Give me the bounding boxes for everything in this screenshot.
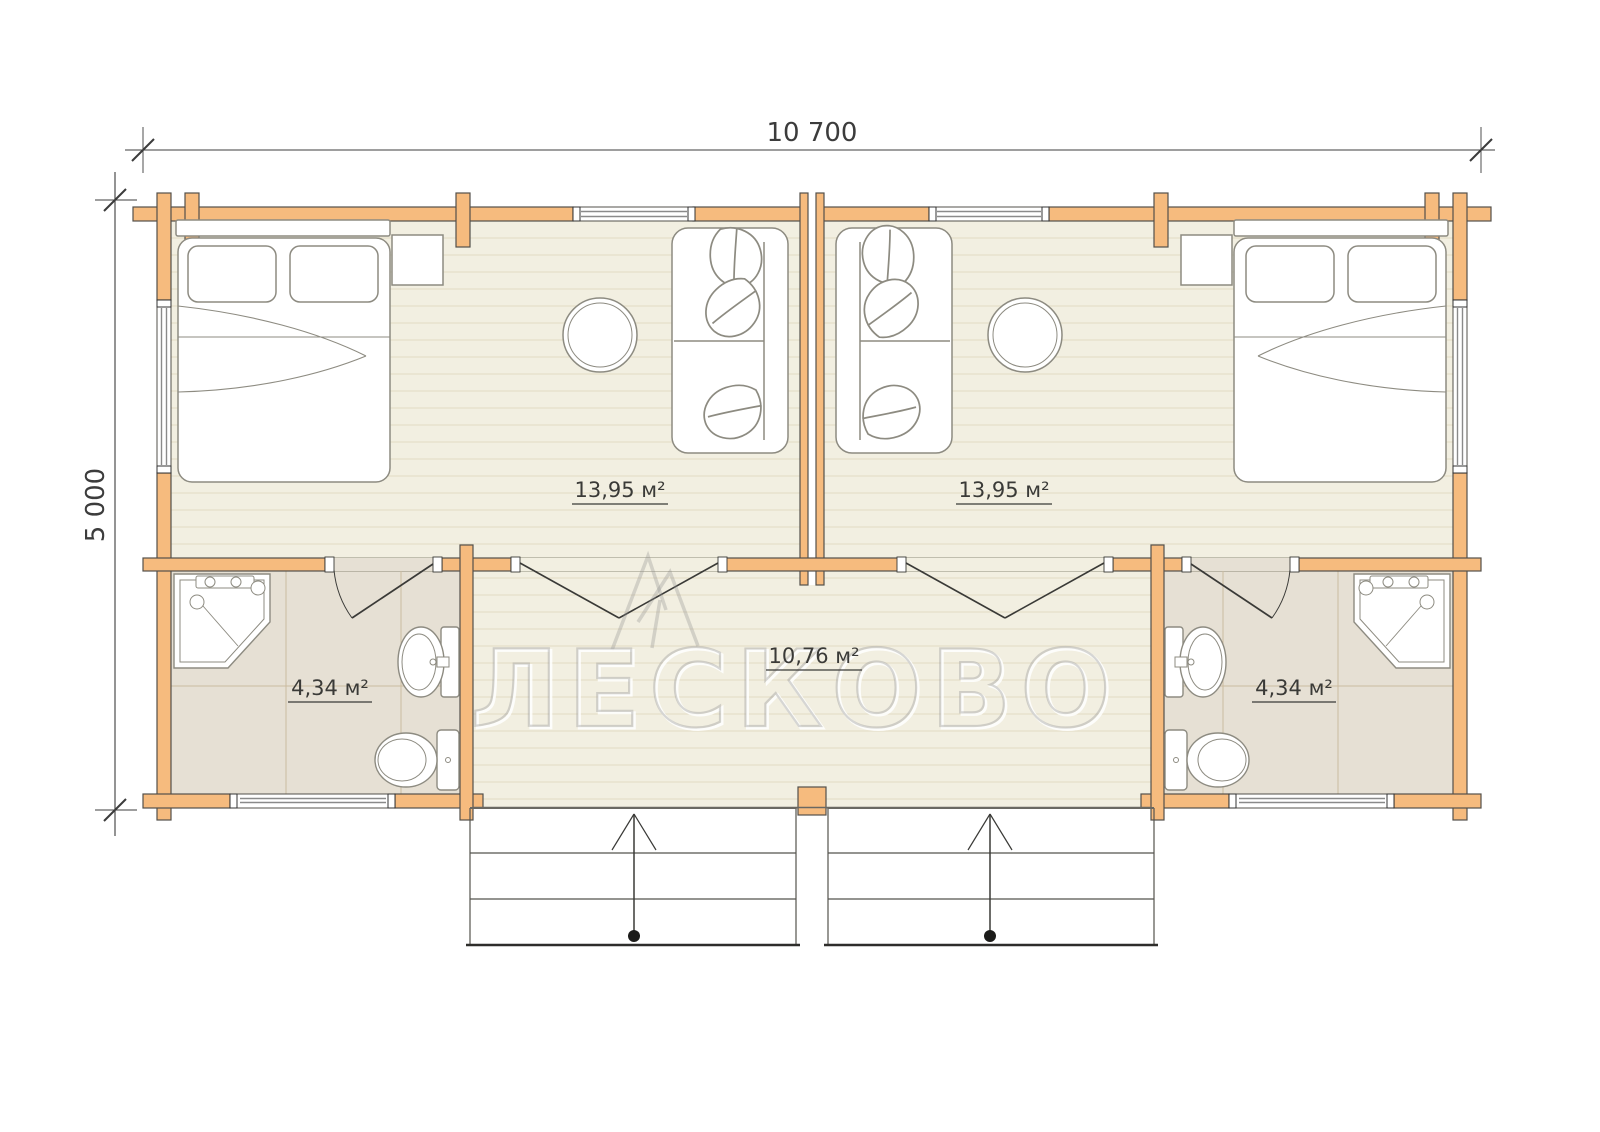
overall-width-dimension: 10 700 [767, 118, 858, 148]
pillow [290, 246, 378, 302]
area-label-living-left: 13,95 м² [574, 478, 665, 502]
sofa [672, 217, 788, 453]
nightstand [1181, 235, 1232, 285]
right-wall [1453, 193, 1467, 300]
washbasin [1165, 627, 1226, 697]
interior-wall [1299, 558, 1481, 571]
toilet [1165, 730, 1249, 790]
window [157, 300, 171, 473]
pillow [188, 246, 276, 302]
window [929, 207, 1049, 221]
area-label-bathroom-left: 4,34 м² [291, 676, 369, 700]
party-wall-gap [808, 193, 816, 585]
entry-post [798, 787, 826, 815]
pillow [1348, 246, 1436, 302]
pillow [1246, 246, 1334, 302]
left-wall [157, 473, 171, 820]
double-bed [1234, 220, 1448, 482]
right-wall [1453, 473, 1467, 820]
interior-wall [143, 558, 325, 571]
interior-wall [1113, 558, 1182, 571]
shower-head-icon [1359, 581, 1373, 595]
window [1229, 794, 1394, 808]
washbasin [398, 627, 459, 697]
party-wall [800, 193, 808, 585]
floor-plan-drawing: 10 700 5 000 [0, 0, 1600, 1132]
round-table [988, 298, 1062, 372]
interior-wall [442, 558, 511, 571]
party-wall [816, 193, 824, 585]
round-table [563, 298, 637, 372]
log-post [1154, 193, 1168, 247]
living-left-door-threshold [520, 558, 718, 571]
bottom-wall [1394, 794, 1481, 808]
window [230, 794, 395, 808]
overall-height-dimension: 5 000 [81, 468, 111, 542]
bathroom-right-partition [1151, 545, 1164, 820]
log-post [456, 193, 470, 247]
bottom-wall [143, 794, 230, 808]
bathroom-right-door-threshold [1191, 558, 1290, 571]
floor-plan-page: 10 700 5 000 [0, 0, 1600, 1132]
bathroom-left-door-threshold [334, 558, 433, 571]
window [573, 207, 695, 221]
sofa [836, 217, 952, 453]
window [1453, 300, 1467, 473]
double-bed [176, 220, 390, 482]
left-wall [157, 193, 171, 300]
area-label-hall: 10,76 м² [768, 644, 859, 668]
nightstand [392, 235, 443, 285]
toilet [375, 730, 459, 790]
living-right-door-threshold [906, 558, 1104, 571]
area-label-living-right: 13,95 м² [958, 478, 1049, 502]
area-label-bathroom-right: 4,34 м² [1255, 676, 1333, 700]
shower-head-icon [251, 581, 265, 595]
interior-wall-center [722, 558, 902, 571]
